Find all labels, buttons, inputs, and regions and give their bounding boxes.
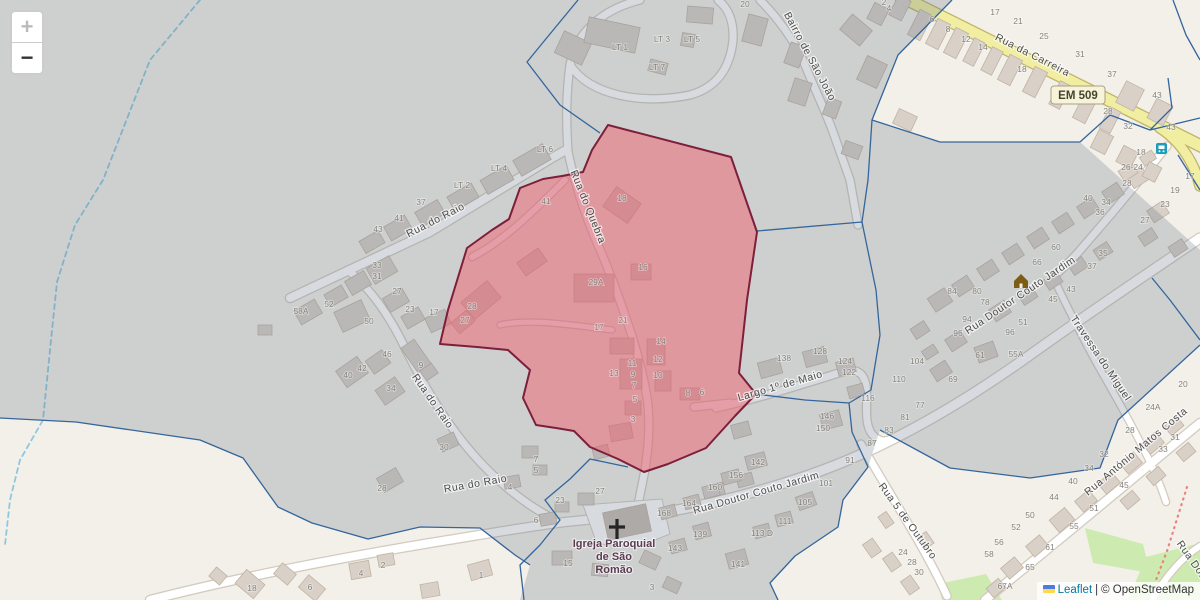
house-number-label: 17 — [594, 322, 604, 332]
house-number-label: 19 — [1170, 185, 1180, 195]
house-number-label: 78 — [980, 297, 990, 307]
house-number-label: 37 — [416, 197, 426, 207]
house-number-label: 58 — [984, 549, 994, 559]
house-number-label: 111 — [779, 516, 792, 526]
house-number-label: 5 — [633, 394, 638, 404]
house-number-label: 7 — [534, 454, 539, 464]
house-number-label: 9 — [419, 360, 424, 370]
house-number-label: LT 7 — [649, 62, 665, 72]
house-number-label: 20 — [1178, 379, 1188, 389]
house-number-label: 44 — [1049, 492, 1059, 502]
house-number-label: 45 — [1119, 480, 1129, 490]
house-number-label: 28 — [1103, 106, 1113, 116]
house-number-label: 27 — [1140, 215, 1150, 225]
house-number-label: 51 — [1018, 317, 1028, 327]
house-number-label: 104 — [910, 356, 924, 366]
house-number-label: 168 — [657, 508, 671, 518]
house-number-label: 43 — [1152, 90, 1162, 100]
house-number-label: 32 — [1123, 121, 1133, 131]
house-number-label: 25 — [1039, 31, 1049, 41]
house-number-label: 34 — [1101, 197, 1111, 207]
house-number-label: 67A — [997, 581, 1012, 591]
house-number-label: 84 — [947, 286, 957, 296]
osm-copyright-link[interactable]: © OpenStreetMap — [1101, 584, 1194, 596]
house-number-label: 40 — [343, 370, 353, 380]
house-number-label: 143 — [668, 543, 682, 553]
house-number-label: 77 — [915, 400, 925, 410]
house-number-label: 11 — [628, 358, 637, 368]
house-number-label: 43 — [373, 224, 383, 234]
house-number-label: 13 — [609, 368, 619, 378]
house-number-label: 65 — [1025, 562, 1035, 572]
house-number-label: 4 — [359, 568, 364, 578]
house-number-label: 164 — [682, 498, 696, 508]
house-number-label: 43 — [1066, 284, 1076, 294]
house-number-label: 1 — [479, 570, 484, 580]
house-number-label: 17 — [1185, 171, 1195, 181]
house-number-label: 30 — [439, 442, 449, 452]
house-number-label: 40 — [1083, 193, 1093, 203]
house-number-label: 27 — [392, 286, 402, 296]
house-number-label: LT 5 — [684, 34, 700, 44]
church-name-label: Igreja Paroquial — [573, 538, 656, 550]
house-number-label: 18 — [617, 193, 627, 203]
house-number-label: 15 — [563, 558, 573, 568]
house-number-label: 61 — [1045, 542, 1055, 552]
house-number-label: 36 — [1095, 207, 1105, 217]
house-number-label: 2 — [381, 560, 386, 570]
house-number-label: 9 — [631, 369, 636, 379]
house-number-label: 128 — [813, 346, 827, 356]
house-number-label: 139 — [693, 529, 707, 539]
house-number-label: 18 — [247, 583, 257, 593]
house-number-label: 69 — [948, 374, 958, 384]
house-number-label: 16 — [638, 262, 648, 272]
house-number-label: 146 — [820, 411, 834, 421]
house-number-label: 7 — [632, 380, 637, 390]
church-name-label: Romão — [595, 564, 633, 576]
house-number-label: LT 6 — [537, 144, 553, 154]
house-number-label: 66 — [1032, 257, 1042, 267]
zoom-out-button[interactable]: − — [12, 43, 42, 73]
house-number-label: 32 — [1099, 449, 1109, 459]
house-number-label: 18 — [1017, 64, 1027, 74]
house-number-label: 83 — [884, 425, 894, 435]
house-number-label: 55 — [1069, 521, 1079, 531]
house-number-label: 122 — [842, 367, 856, 377]
house-number-label: 14 — [656, 336, 666, 346]
house-number-label: 91 — [845, 455, 855, 465]
house-number-label: 24A — [1145, 402, 1160, 412]
house-number-label: 27 — [460, 315, 470, 325]
house-number-label: 4 — [508, 482, 513, 492]
house-number-label: 156 — [729, 470, 743, 480]
house-number-label: 61 — [975, 350, 985, 360]
house-number-label: 23 — [405, 304, 415, 314]
house-number-label: 33 — [372, 260, 382, 270]
church-name-label: de São — [596, 551, 632, 563]
house-number-label: 28 — [467, 301, 477, 311]
house-number-label: 51 — [1089, 503, 1099, 513]
house-number-label: 6 — [534, 515, 539, 525]
house-number-label: 8 — [946, 24, 951, 34]
house-number-label: 37 — [1087, 261, 1097, 271]
house-number-label: 96 — [953, 328, 963, 338]
house-number-label: LT 4 — [491, 163, 507, 173]
building — [420, 582, 440, 599]
house-number-label: 81 — [900, 412, 910, 422]
road-ref-label: EM 509 — [1058, 90, 1098, 102]
house-number-label: 8 — [686, 388, 691, 398]
house-number-label: 110 — [892, 374, 906, 384]
house-number-label: 160 — [708, 482, 722, 492]
map-canvas: Rua do RaioRua do RaioRua do RaioRua do … — [0, 0, 1200, 600]
house-number-label: LT 1 — [612, 42, 628, 52]
house-number-label: 41 — [541, 196, 551, 206]
house-number-label: 138 — [777, 353, 791, 363]
house-number-label: 24 — [898, 547, 908, 557]
house-number-label: 116 — [861, 393, 875, 403]
house-number-label: 3 — [650, 582, 655, 592]
house-number-label: 26-24 — [1121, 162, 1143, 172]
attribution-bar: Leaflet|© OpenStreetMap — [1037, 582, 1200, 600]
house-number-label: 30 — [914, 567, 924, 577]
house-number-label: 34 — [386, 383, 396, 393]
leaflet-link[interactable]: Leaflet — [1058, 584, 1093, 596]
house-number-label: 42 — [357, 363, 367, 373]
house-number-label: 5 — [534, 465, 539, 475]
house-number-label: 35 — [1098, 248, 1108, 258]
map-container[interactable]: Rua do RaioRua do RaioRua do RaioRua do … — [0, 0, 1200, 600]
house-number-label: 21 — [1013, 16, 1023, 26]
house-number-label: 52 — [1011, 522, 1021, 532]
house-number-label: 87 — [867, 438, 877, 448]
house-number-label: 56 — [994, 537, 1004, 547]
house-number-label: 23 — [1160, 199, 1170, 209]
house-number-label: 41 — [394, 213, 404, 223]
house-number-label: 96 — [1005, 327, 1015, 337]
house-number-label: 113 D — [751, 528, 773, 538]
house-number-label: 6 — [700, 387, 705, 397]
house-number-label: 6 — [930, 14, 935, 24]
house-number-label: 31 — [1170, 432, 1180, 442]
house-number-label: 28 — [377, 483, 387, 493]
house-number-label: 52 — [324, 299, 334, 309]
house-number-label: 37 — [1107, 69, 1117, 79]
house-number-label: 50 — [1025, 510, 1035, 520]
home-icon — [1020, 284, 1023, 289]
house-number-label: 142 — [751, 457, 765, 467]
house-number-label: 29A — [588, 277, 603, 287]
house-number-label: 60 — [1051, 242, 1061, 252]
house-number-label: 50 — [364, 316, 374, 326]
house-number-label: 45 — [1048, 294, 1058, 304]
house-number-label: 10 — [653, 370, 663, 380]
house-number-label: 105 — [798, 497, 812, 507]
bus-stop-icon — [1159, 150, 1161, 152]
house-number-label: 46 — [382, 349, 392, 359]
house-number-label: 40 — [1068, 476, 1078, 486]
attribution-separator: | — [1095, 584, 1098, 596]
house-number-label: 101 — [819, 478, 833, 488]
house-number-label: 31 — [1075, 49, 1085, 59]
house-number-label: 6 — [308, 582, 313, 592]
house-number-label: 28 — [1122, 178, 1132, 188]
house-number-label: 4 — [887, 3, 892, 13]
house-number-label: LT 3 — [654, 34, 670, 44]
house-number-label: 55A — [1008, 349, 1023, 359]
house-number-label: 23 — [555, 495, 565, 505]
house-number-label: 124 — [838, 356, 852, 366]
house-number-label: 34 — [1084, 463, 1094, 473]
zoom-in-button[interactable]: + — [12, 12, 42, 43]
house-number-label: 94 — [962, 314, 972, 324]
house-number-label: 33 — [1158, 444, 1168, 454]
house-number-label: LT 2 — [454, 180, 470, 190]
house-number-label: 27 — [595, 486, 605, 496]
zoom-control: + − — [10, 10, 44, 75]
house-number-label: 43 — [1166, 122, 1176, 132]
house-number-label: 31 — [372, 271, 382, 281]
house-number-label: 80 — [972, 286, 982, 296]
ukraine-flag-icon — [1043, 585, 1055, 593]
house-number-label: 12 — [961, 34, 971, 44]
bus-stop-icon — [1159, 146, 1165, 150]
house-number-label: 14 — [978, 42, 988, 52]
house-number-label: 28 — [907, 557, 917, 567]
house-number-label: 12 — [653, 354, 663, 364]
house-number-label: 3 — [631, 414, 636, 424]
house-number-label: 21 — [618, 315, 628, 325]
house-number-label: 20 — [740, 0, 750, 9]
house-number-label: 141 — [731, 559, 745, 569]
bus-stop-icon — [1163, 150, 1165, 152]
house-number-label: 17 — [429, 307, 439, 317]
house-number-label: 17 — [990, 7, 1000, 17]
house-number-label: 18 — [1136, 147, 1146, 157]
house-number-label: 28 — [1125, 425, 1135, 435]
house-number-label: 150 — [816, 423, 830, 433]
house-number-label: 58A — [293, 306, 308, 316]
